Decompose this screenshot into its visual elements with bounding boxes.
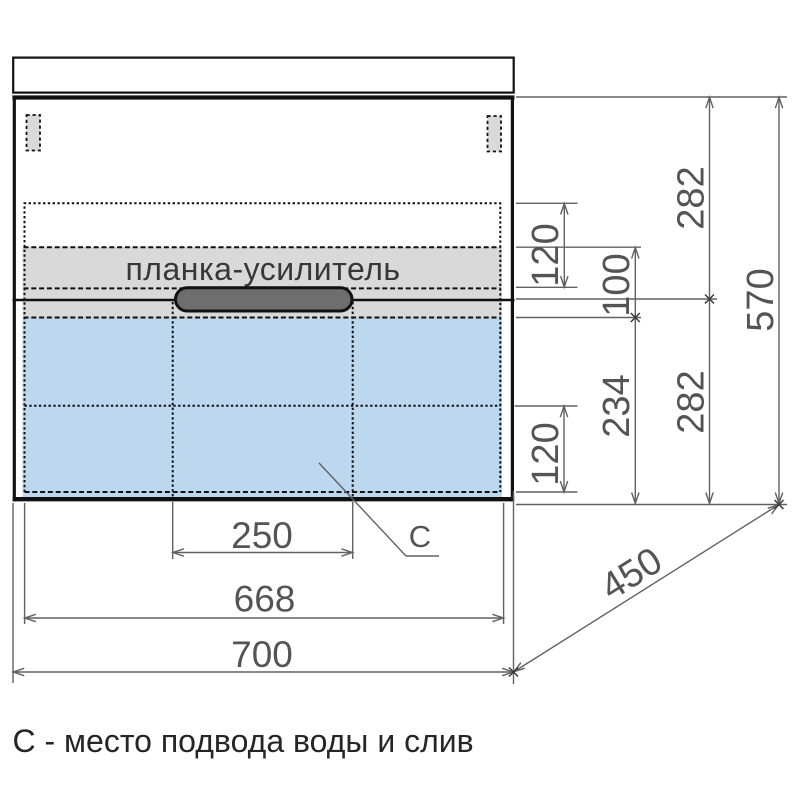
svg-text:570: 570 xyxy=(740,268,782,331)
svg-text:120: 120 xyxy=(525,223,567,286)
svg-text:планка-усилитель: планка-усилитель xyxy=(125,251,400,287)
svg-text:700: 700 xyxy=(231,634,293,675)
svg-text:100: 100 xyxy=(596,253,638,316)
svg-text:250: 250 xyxy=(231,515,293,556)
svg-text:668: 668 xyxy=(234,579,296,620)
svg-text:120: 120 xyxy=(525,422,567,485)
svg-text:С - место подвода воды и слив: С - место подвода воды и слив xyxy=(13,723,474,759)
svg-text:282: 282 xyxy=(671,370,713,433)
svg-text:234: 234 xyxy=(596,374,638,437)
svg-text:282: 282 xyxy=(671,166,713,229)
svg-text:С: С xyxy=(409,519,431,554)
